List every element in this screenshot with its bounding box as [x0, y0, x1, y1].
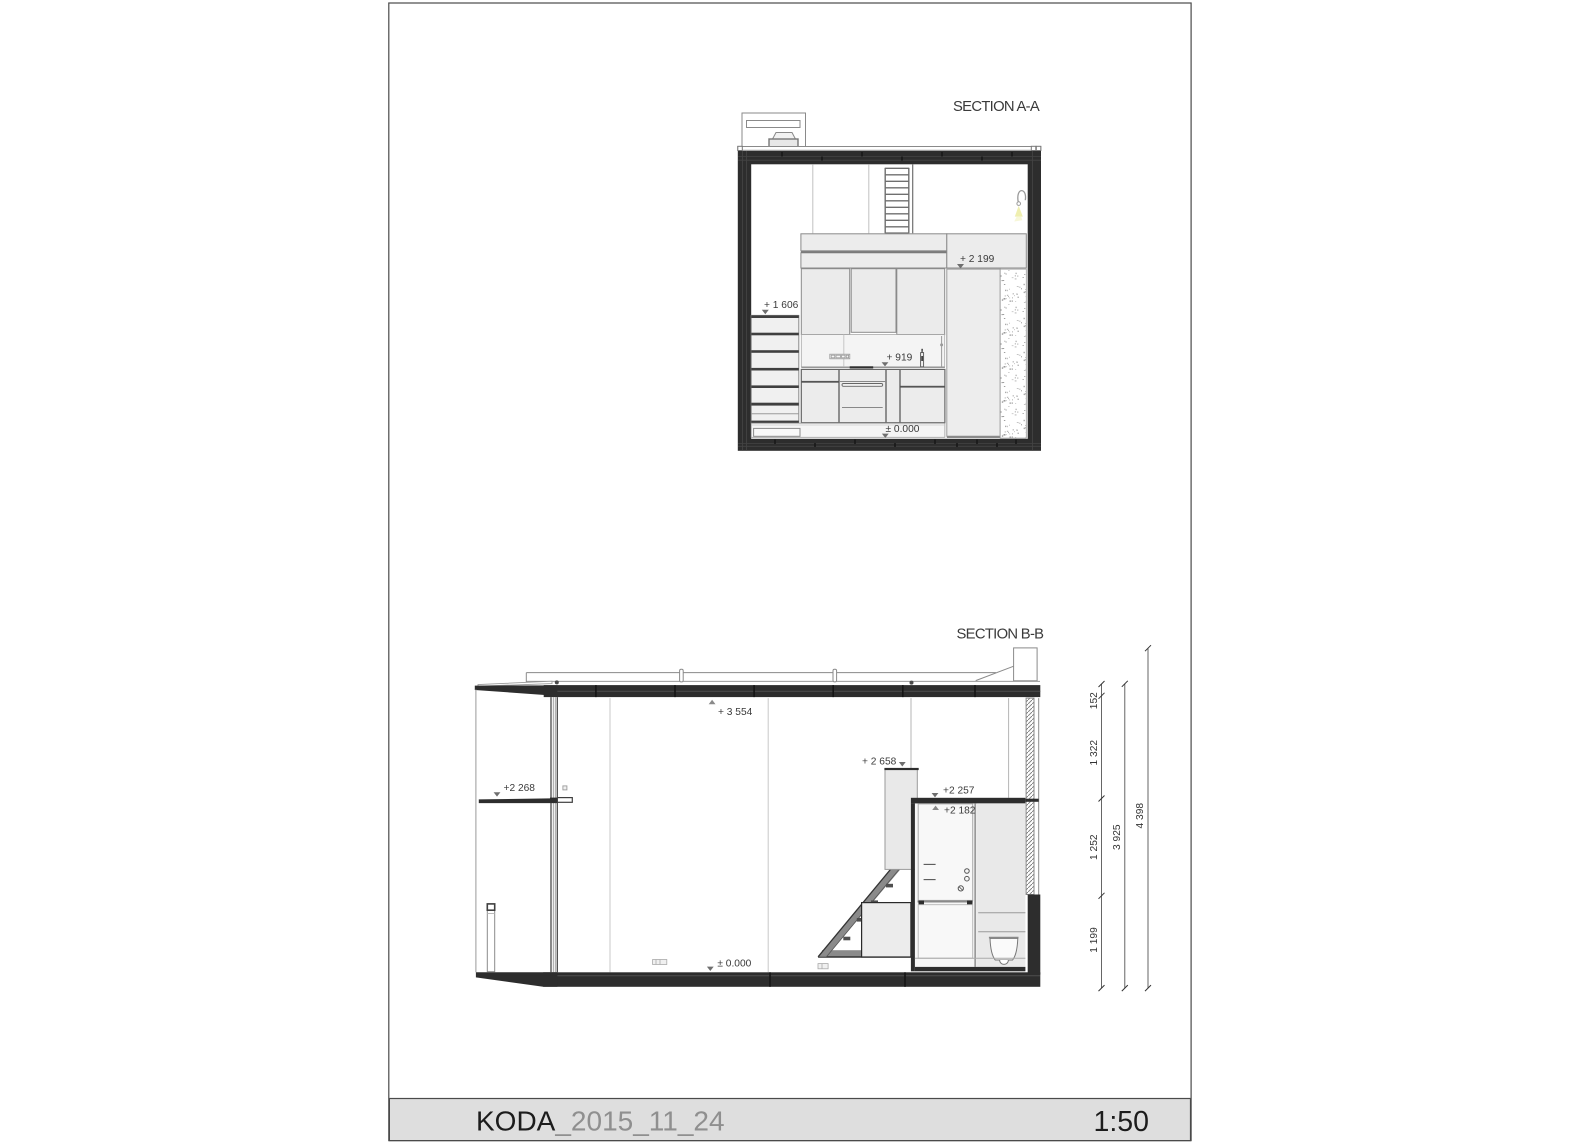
svg-text:+ 919: + 919 — [887, 352, 913, 363]
svg-text:+2 257: +2 257 — [943, 786, 975, 797]
svg-text:3 925: 3 925 — [1112, 824, 1123, 850]
svg-text:+2 268: +2 268 — [504, 783, 536, 794]
svg-text:SECTION B-B: SECTION B-B — [957, 627, 1045, 643]
svg-text:+ 2 199: + 2 199 — [960, 254, 995, 265]
svg-text:1:50: 1:50 — [1094, 1106, 1149, 1138]
svg-text:KODA_2015_11_24: KODA_2015_11_24 — [476, 1106, 725, 1137]
svg-text:+ 3 554: + 3 554 — [718, 707, 753, 718]
svg-text:SECTION A-A: SECTION A-A — [953, 99, 1040, 115]
svg-text:1 322: 1 322 — [1089, 740, 1100, 766]
svg-text:+ 1 606: + 1 606 — [764, 300, 799, 311]
svg-text:± 0.000: ± 0.000 — [886, 424, 920, 435]
svg-text:+2 182: +2 182 — [944, 806, 976, 817]
svg-text:1 199: 1 199 — [1089, 927, 1100, 953]
svg-text:1 252: 1 252 — [1089, 834, 1100, 860]
svg-text:+ 2 658: + 2 658 — [862, 757, 897, 768]
svg-text:± 0.000: ± 0.000 — [717, 959, 751, 970]
svg-text:4 398: 4 398 — [1135, 803, 1146, 829]
svg-text:152: 152 — [1089, 692, 1100, 709]
